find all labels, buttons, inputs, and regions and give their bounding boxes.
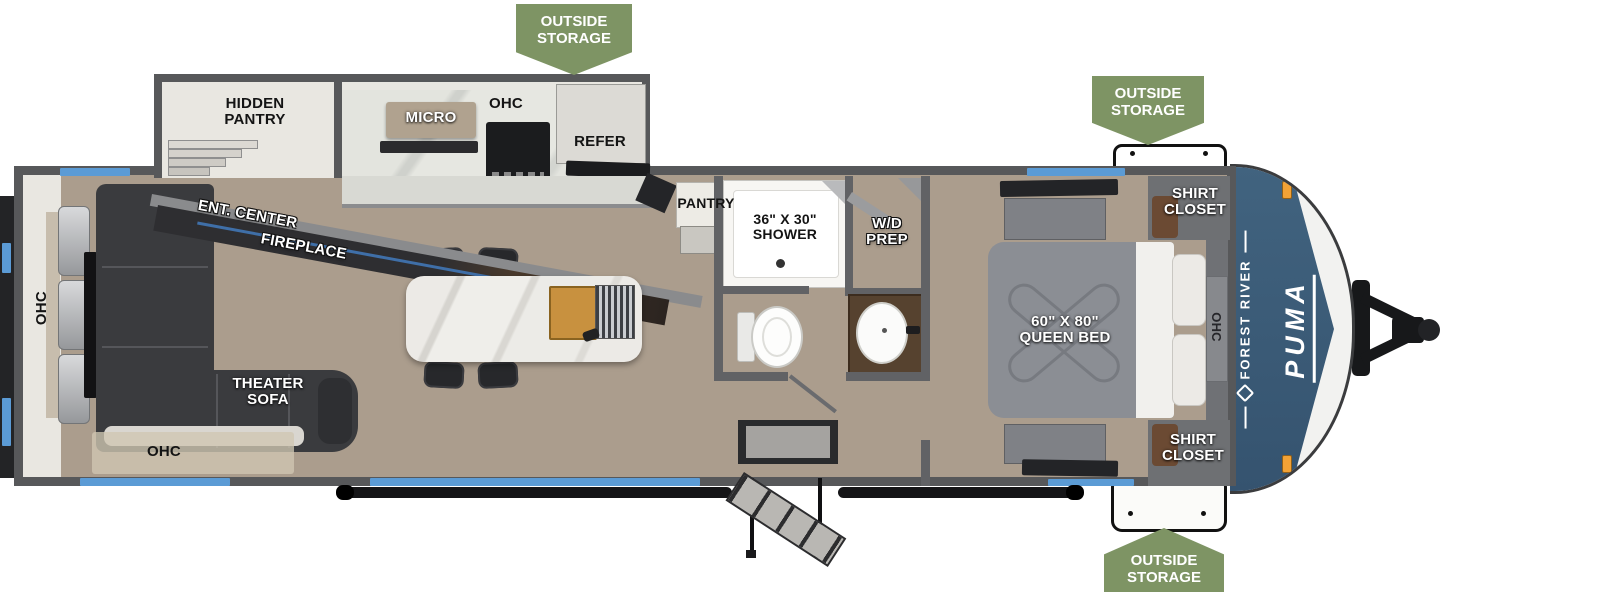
bedroom-shelf-bottom — [1022, 459, 1118, 477]
sofa-armrest — [318, 378, 352, 444]
puma-text: PUMA — [1280, 275, 1316, 383]
bath-vanity — [848, 294, 930, 374]
theater-sofa-label: THEATER SOFA — [220, 376, 316, 408]
puma-wordmark: PUMA — [1276, 167, 1320, 491]
storage-door-top-rivet — [1130, 151, 1135, 156]
window-bottom-kitchen — [370, 478, 700, 486]
storage-door-bottom-rivet — [1128, 511, 1133, 516]
hitch-coupler-knob — [1418, 319, 1440, 341]
bedroom-ohc-label: OHC — [1209, 297, 1223, 357]
bed-pillow — [1172, 334, 1206, 406]
storage-door-bottom-rivet — [1201, 511, 1206, 516]
awning-rail-right — [838, 487, 1078, 498]
wd-corner-shelf — [898, 178, 922, 202]
bedroom-cabinet-bottom — [1004, 424, 1106, 464]
kitchen-island — [406, 276, 642, 362]
refer-label: REFER — [560, 134, 640, 150]
wd-prep-label: W/D PREP — [850, 216, 924, 248]
refrigerator — [556, 84, 646, 164]
bedroom-cabinet-top — [1004, 198, 1106, 240]
island-chair — [477, 361, 518, 389]
pantry-label: PANTRY — [670, 196, 742, 211]
window-top-rear — [60, 168, 130, 176]
bedroom-shelf-top — [1000, 179, 1118, 197]
island-chair — [423, 361, 464, 389]
pantry-step — [168, 167, 210, 176]
front-cap: FOREST RIVER PUMA — [1230, 164, 1355, 494]
entry-door-mat — [746, 426, 830, 458]
micro-label: MICRO — [392, 110, 470, 126]
hidden-pantry-label: HIDDEN PANTRY — [180, 96, 330, 128]
pantry-step — [168, 158, 226, 167]
sink-drain — [882, 328, 887, 333]
pantry-step — [168, 140, 258, 149]
micro-vent — [380, 141, 478, 153]
forest-river-text: FOREST RIVER — [1238, 259, 1253, 379]
window-bottom-bedroom — [1048, 479, 1134, 486]
outside-storage-badge-top-center: OUTSIDE STORAGE — [516, 4, 632, 75]
bath-wall-bottom-right — [846, 372, 930, 381]
sofa-seam — [102, 346, 208, 348]
outside-storage-badge-bottom-right: OUTSIDE STORAGE — [1104, 528, 1224, 592]
wordmark-rule — [1244, 406, 1246, 428]
kitchen-ohc-label: OHC — [478, 96, 534, 112]
stove — [486, 122, 550, 184]
toilet-bowl — [751, 306, 803, 368]
wordmark-rule — [1244, 230, 1246, 252]
bed-sheet — [1136, 242, 1174, 418]
storage-door-top-rivet — [1203, 151, 1208, 156]
bath-wall-right — [921, 176, 930, 381]
sofa-seam — [102, 266, 208, 268]
queen-bed-label: 60" X 80" QUEEN BED — [1008, 314, 1122, 346]
shirt-closet-bottom-label: SHIRT CLOSET — [1156, 432, 1230, 464]
pantry-step — [168, 149, 242, 158]
floorplan-canvas: HIDDEN PANTRY MICRO OHC REFER ENT. CENTE… — [0, 0, 1600, 592]
awning-rail-left — [344, 487, 732, 498]
outside-storage-badge-top-right: OUTSIDE STORAGE — [1092, 76, 1204, 145]
forest-river-logo-icon — [1236, 383, 1254, 401]
bed-pillow — [1172, 254, 1206, 326]
entry-step-foot — [746, 550, 756, 558]
awning-rail-right-cap — [1066, 485, 1084, 500]
sofa-ohc-label: OHC — [134, 444, 194, 460]
window-bottom-sofa — [80, 478, 230, 486]
awning-rail-left-cap — [336, 485, 354, 500]
bath-sink — [856, 302, 908, 364]
rear-window — [2, 398, 11, 446]
entry-steps-ladder — [725, 472, 846, 567]
kitchen-counter-extension — [342, 176, 652, 208]
rear-ohc-label: OHC — [34, 278, 50, 338]
island-sink-grate — [595, 285, 635, 339]
shirt-closet-top-label: SHIRT CLOSET — [1158, 186, 1232, 218]
bedroom-entry-stub-wall — [921, 440, 930, 486]
rear-window — [2, 243, 11, 273]
shower-label: 36" X 30" SHOWER — [723, 212, 847, 242]
shower-wall-bottom — [723, 286, 809, 294]
slideout-divider-wall — [334, 82, 342, 178]
sink-faucet — [906, 326, 920, 334]
entry-door-landing — [738, 420, 838, 464]
bath-wall-bottom-left — [714, 372, 788, 381]
toilet-seat — [762, 317, 792, 357]
window-top-bedroom — [1027, 168, 1125, 176]
shower-drain — [776, 259, 785, 268]
